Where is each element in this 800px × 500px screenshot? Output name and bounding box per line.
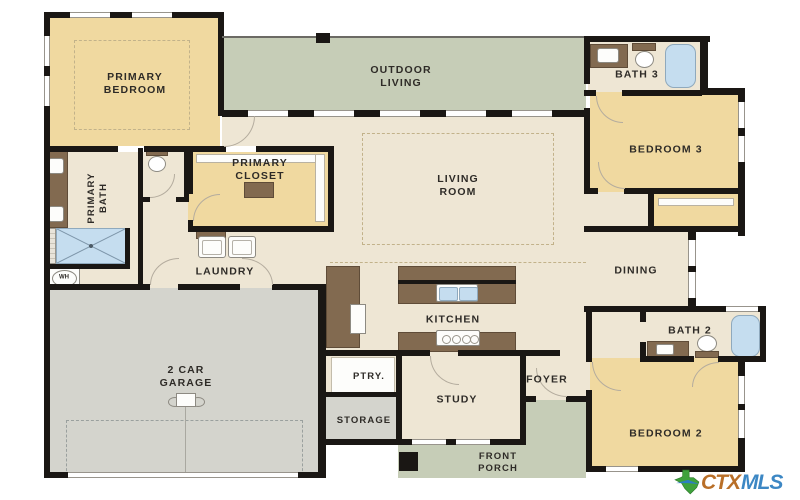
- window: [456, 439, 490, 445]
- primary-sink-1: [48, 158, 64, 174]
- foyer-label: FOYER: [512, 373, 582, 386]
- window: [738, 102, 745, 128]
- window: [44, 76, 50, 106]
- laundry-label: LAUNDRY: [170, 265, 280, 278]
- primary-bath-label: PRIMARY BATH: [86, 166, 110, 230]
- window: [606, 466, 638, 472]
- wall: [138, 148, 143, 202]
- window: [446, 110, 486, 117]
- bath3-toilet-tank: [632, 43, 656, 51]
- wall: [44, 284, 150, 290]
- window: [688, 240, 696, 266]
- window: [380, 110, 420, 117]
- window: [132, 12, 172, 18]
- window: [44, 36, 50, 66]
- primary-sink-2: [48, 206, 64, 222]
- window: [688, 272, 696, 298]
- wall: [622, 90, 702, 96]
- room-front-porch-upper: [523, 400, 586, 446]
- primary-toilet: [148, 156, 166, 172]
- wall: [648, 194, 654, 228]
- logo-ctx-text: CTX: [701, 472, 740, 493]
- kitchen-ceiling-line: [330, 262, 586, 263]
- wall: [640, 356, 694, 362]
- wall: [624, 188, 744, 194]
- wall: [584, 108, 590, 194]
- window: [412, 439, 446, 445]
- wall: [316, 33, 330, 43]
- wall: [188, 148, 193, 194]
- logo-mls-text: MLS: [741, 472, 782, 493]
- wall: [584, 188, 598, 194]
- wall: [44, 472, 68, 478]
- wall: [178, 284, 240, 290]
- living-room-label: LIVING ROOM: [423, 173, 493, 199]
- refrigerator: [350, 304, 366, 334]
- primary-closet-label: PRIMARY CLOSET: [215, 157, 305, 183]
- study-label: STUDY: [417, 393, 497, 406]
- window: [314, 110, 354, 117]
- wall: [586, 36, 710, 42]
- outdoor-living-label: OUTDOOR LIVING: [354, 64, 449, 90]
- porch-column: [399, 452, 418, 471]
- wall: [640, 312, 646, 322]
- garage-opener-icon: [176, 393, 196, 407]
- window: [738, 410, 745, 438]
- garage-label: 2 CAR GARAGE: [146, 364, 226, 390]
- window: [70, 12, 110, 18]
- closet-shelf-right: [315, 154, 325, 222]
- dryer: [228, 236, 256, 258]
- wall: [328, 148, 334, 232]
- shower-glass-icon: [57, 229, 125, 263]
- washer: [198, 236, 226, 258]
- wall: [586, 306, 592, 362]
- bath2-toilet-tank: [695, 351, 719, 358]
- wall: [326, 439, 402, 445]
- window: [738, 136, 745, 162]
- wall: [396, 352, 402, 444]
- bath3-label: BATH 3: [597, 68, 677, 81]
- wall: [700, 36, 708, 94]
- primary-bedroom-label: PRIMARY BEDROOM: [89, 71, 181, 97]
- front-porch-label: FRONT PORCH: [464, 451, 532, 475]
- wall: [586, 390, 592, 472]
- bath2-tub: [731, 315, 760, 357]
- closet-island: [244, 182, 274, 198]
- bath3-sink: [597, 48, 619, 63]
- wall: [125, 228, 130, 269]
- wall: [176, 197, 189, 202]
- kitchen-sink-basin-2: [459, 287, 478, 301]
- wall: [44, 264, 130, 269]
- storage-label: STORAGE: [319, 415, 409, 427]
- wall: [584, 226, 744, 232]
- kitchen-sink-basin-1: [439, 287, 458, 301]
- outdoor-top-line: [222, 36, 588, 38]
- bath2-sink: [656, 344, 674, 355]
- bath2-label: BATH 2: [655, 324, 725, 337]
- wall: [318, 288, 326, 478]
- window: [512, 110, 552, 117]
- wall: [760, 306, 766, 362]
- water-heater-label: WH: [59, 274, 69, 282]
- wall: [138, 202, 143, 288]
- garage-opener-line: [185, 405, 186, 472]
- pantry-label: PTRY.: [339, 371, 399, 383]
- bedroom3-label: BEDROOM 3: [620, 143, 712, 156]
- range-stove: [436, 330, 480, 346]
- window: [738, 376, 745, 404]
- garage-door-opening: [68, 472, 298, 478]
- wall: [566, 396, 592, 402]
- wall: [584, 90, 596, 96]
- wall: [326, 392, 400, 397]
- wall: [326, 350, 430, 356]
- dining-label: DINING: [591, 264, 681, 277]
- wall: [44, 288, 50, 478]
- wall: [188, 226, 334, 232]
- kitchen-label: KITCHEN: [398, 313, 508, 326]
- wall: [458, 350, 560, 356]
- primary-shower: [56, 228, 126, 264]
- room-bedroom3-hall: [590, 192, 650, 228]
- door-gap: [226, 146, 256, 152]
- wall: [520, 396, 536, 402]
- wall: [584, 36, 590, 84]
- wall: [218, 12, 224, 116]
- closet3-shelf: [658, 198, 734, 206]
- ctxmls-logo: CTXMLS: [674, 468, 782, 496]
- window: [726, 306, 758, 312]
- texas-icon: [674, 469, 700, 495]
- floor-plan: WH: [0, 0, 800, 500]
- bedroom2-label: BEDROOM 2: [620, 427, 712, 440]
- bath3-toilet: [635, 51, 654, 68]
